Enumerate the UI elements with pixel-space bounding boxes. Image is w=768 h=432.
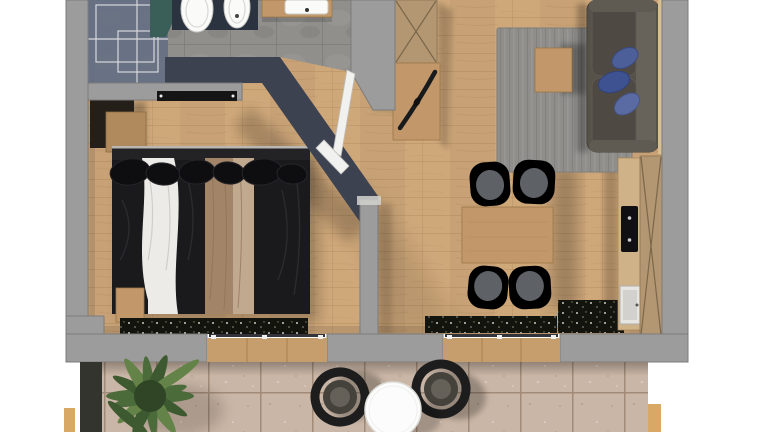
dining-chair [512,159,556,205]
bedroom-sliding-door [207,334,327,362]
burner-dot [628,216,632,220]
dining-chair [469,161,512,208]
partition-shadow [378,204,392,334]
coffee-table [535,48,572,92]
bidet-faucet [235,14,239,18]
kitchenette [618,156,662,336]
terrace [64,353,661,432]
door-hardware [211,335,216,339]
headboard-edge [112,146,310,149]
partition-cap [357,196,381,205]
left-wall [66,0,88,334]
sink-basin [623,290,637,320]
threshold [207,338,327,362]
living-sliding-door [443,334,560,362]
sofa-backrest [636,4,656,148]
faucet-dot [636,304,639,307]
door-hardware [551,335,556,339]
window-flower-box [558,300,624,333]
bathroom-south-wall [165,57,280,83]
window-flower-box [425,316,557,333]
radiator-cap [160,95,163,98]
wall-wood-trim [658,0,662,154]
partition-wall [360,200,378,334]
bedside-bench [116,288,144,322]
entrance-hall [393,0,440,140]
basin-faucet [305,8,309,12]
dining-set-shadow [553,168,577,308]
terrace-edge-right [648,404,661,432]
right-wall [662,0,688,362]
planter-box [80,362,102,432]
bottom-wall-middle [327,334,443,362]
door-hardware [497,335,502,339]
dining-chair [466,264,510,310]
window-flower-box [120,318,308,334]
wall-radiator [157,91,237,101]
dining-table [462,207,553,263]
plant-core [134,380,166,412]
door-hardware [318,335,323,339]
floor-plan-canvas [0,0,768,432]
dining-chair [508,265,552,310]
radiator-cap [232,95,235,98]
cooktop [621,206,638,252]
door-hardware [447,335,452,339]
vanity-shadow [262,17,332,22]
bottom-wall-right [560,334,688,362]
sofa-armrest [589,0,657,12]
threshold [443,338,560,362]
sofa [587,0,659,152]
door-hardware [262,335,267,339]
dining-set [462,159,556,311]
burner-dot [628,238,632,242]
terrace-edge-left [64,408,75,432]
sofa-armrest [589,140,657,152]
floor-plan [0,0,768,432]
bottom-wall-left [66,334,207,362]
